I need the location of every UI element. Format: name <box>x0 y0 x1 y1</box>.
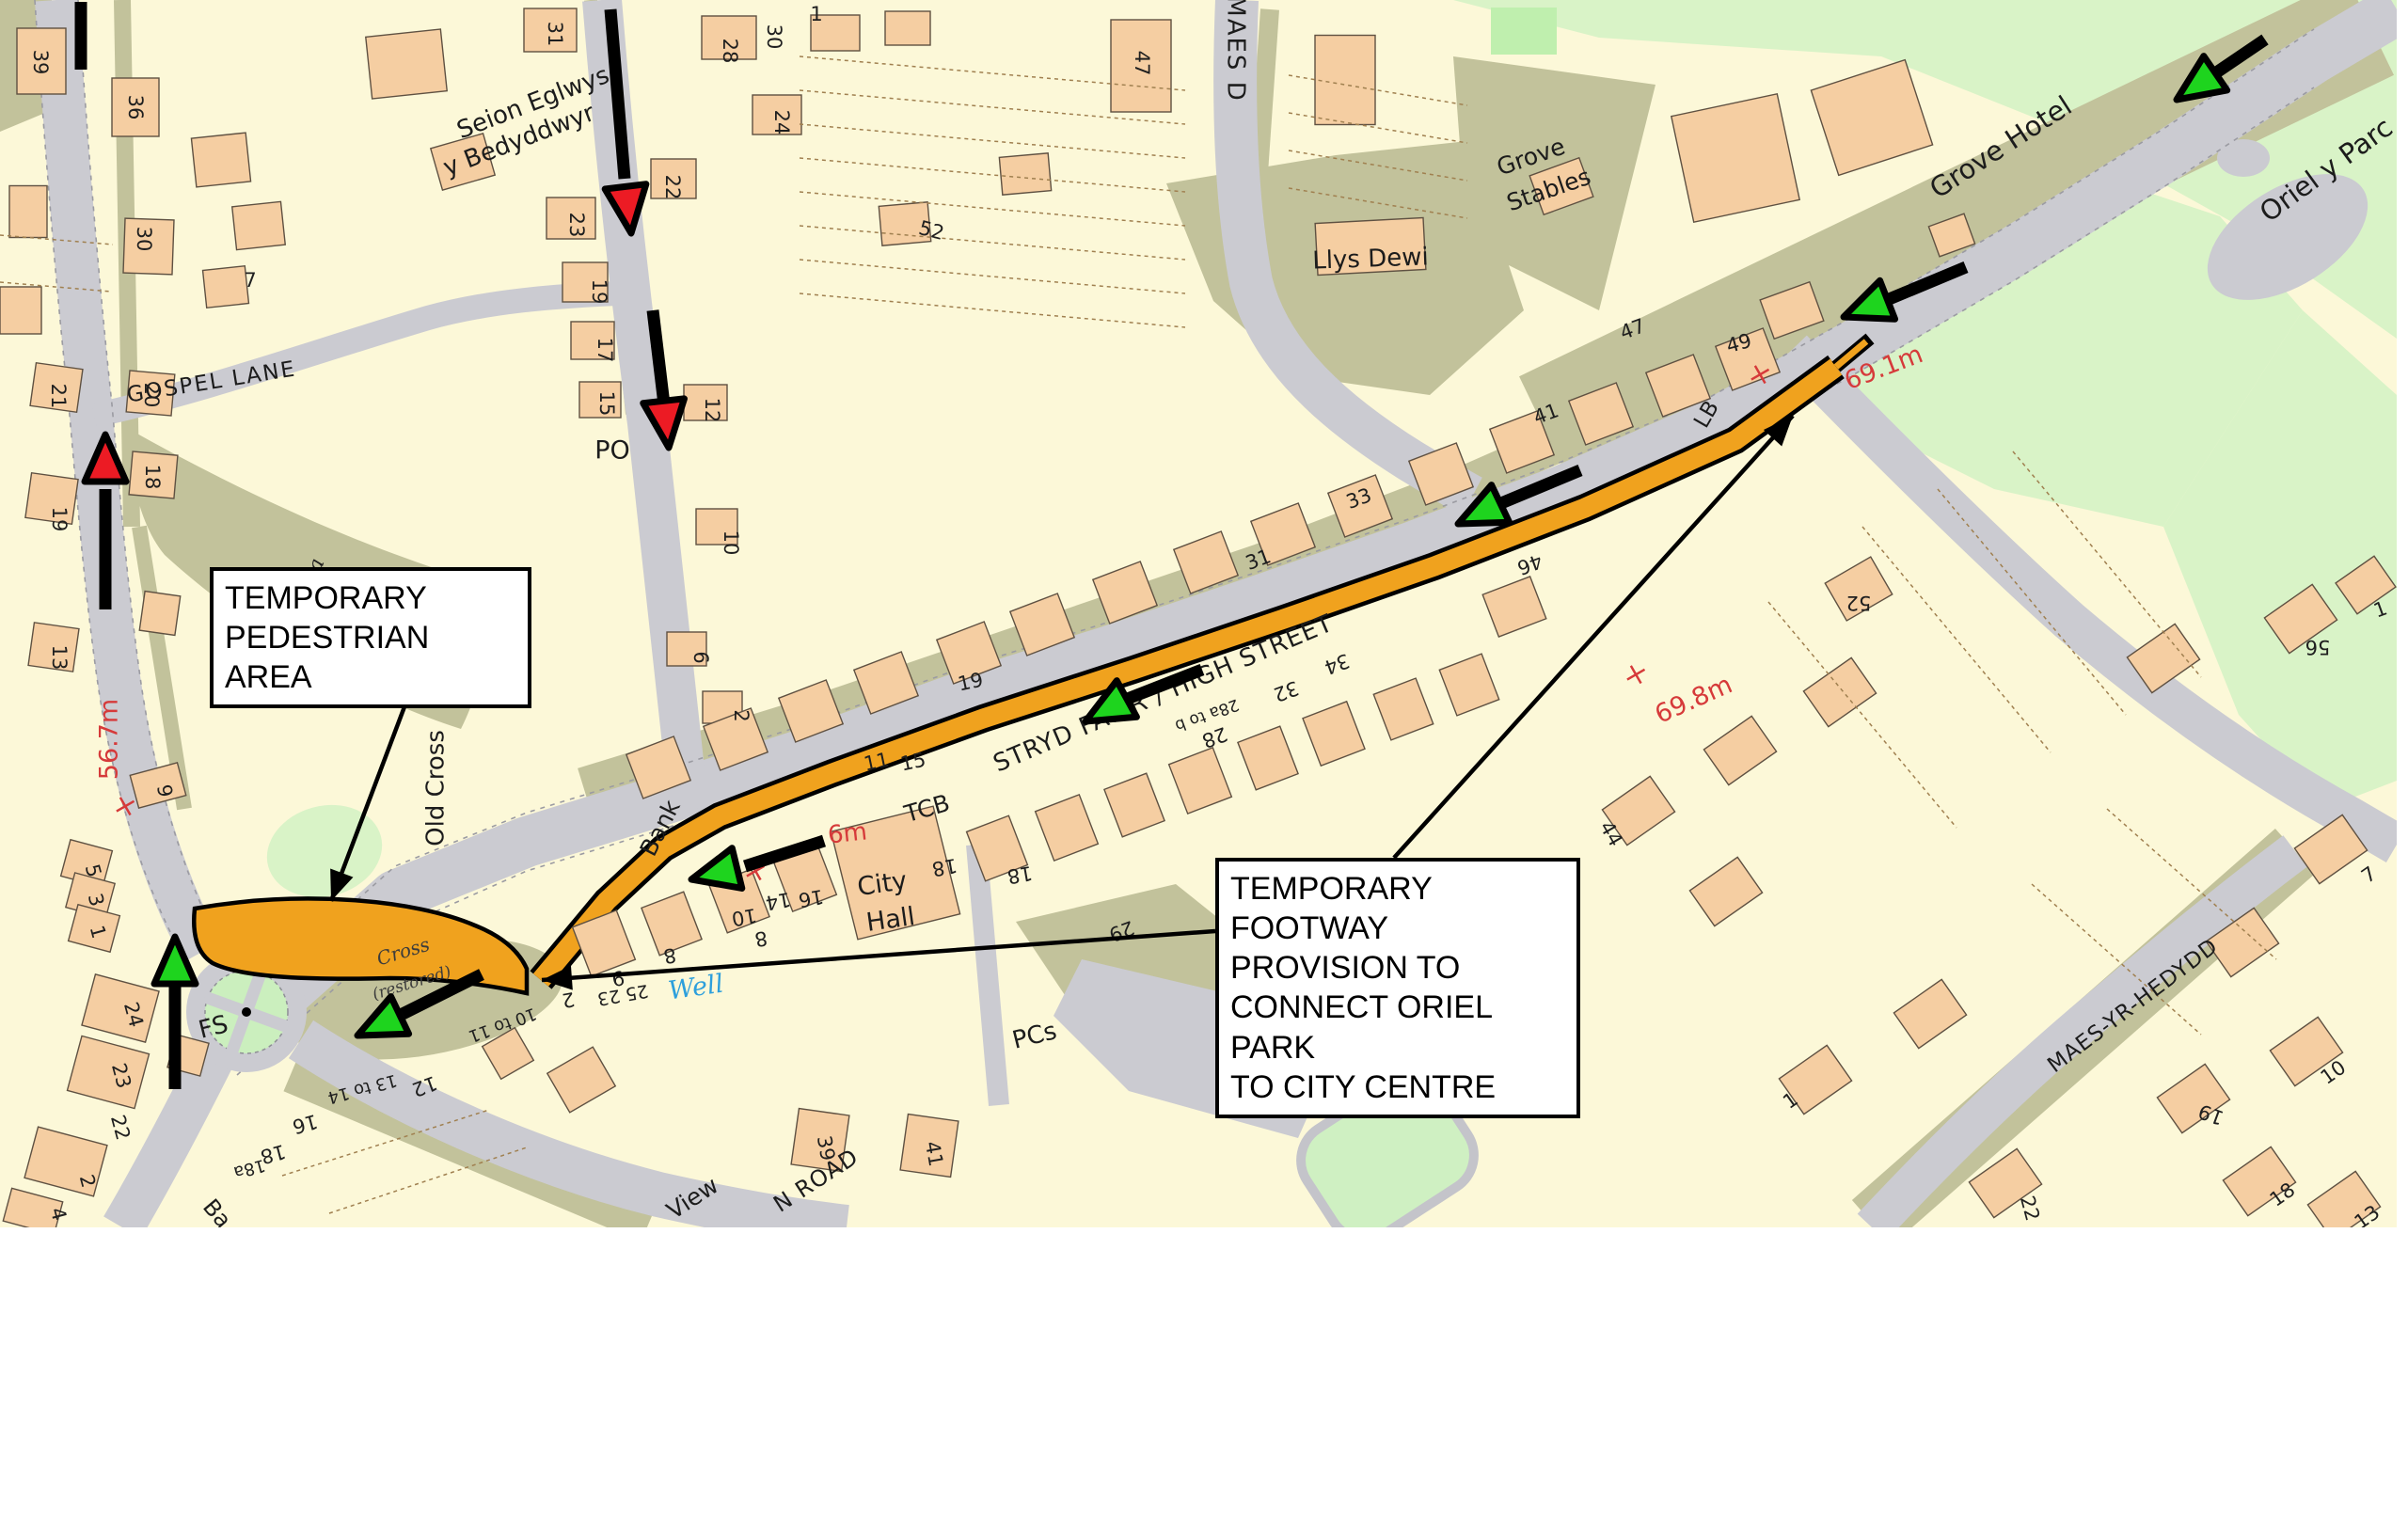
map-label: 10 <box>720 530 742 556</box>
map-label: 30 <box>763 24 785 50</box>
map-label: 23 <box>565 213 588 238</box>
building <box>1671 94 1799 222</box>
map-label: MAES D <box>1222 0 1250 103</box>
map-label: 15 <box>595 391 618 417</box>
map-label: 10 <box>730 904 758 930</box>
map-label: 21 <box>47 384 70 409</box>
building <box>999 153 1051 195</box>
map-label: 39 <box>813 1134 839 1162</box>
map-label: 1 <box>810 3 822 25</box>
map-label: 18 <box>141 465 164 490</box>
map-label: 6 <box>689 651 712 663</box>
map-label: 22 <box>661 175 684 200</box>
map-label: 36 <box>124 95 147 120</box>
building <box>232 201 286 249</box>
map-label: 16 <box>797 885 825 911</box>
map-label: 14 <box>764 888 792 914</box>
map-label: 18 <box>930 854 958 880</box>
map-label: 28 <box>719 39 741 64</box>
building <box>9 186 47 238</box>
map-label: 56.7m <box>95 699 124 780</box>
map-label: 52 <box>1846 592 1872 614</box>
building <box>1315 36 1375 125</box>
building <box>203 266 249 308</box>
map-label: 19 <box>588 279 610 305</box>
map-label: 30 <box>133 227 155 252</box>
map-label: 19 <box>48 507 71 532</box>
annotation-temporary-pedestrian-area: TEMPORARY PEDESTRIAN AREA <box>210 567 531 708</box>
map-label: 17 <box>594 338 616 363</box>
annotation-temporary-footway-provision: TEMPORARY FOOTWAY PROVISION TO CONNECT O… <box>1215 858 1580 1118</box>
map-label: 39 <box>29 50 52 75</box>
map-label: 47 <box>1131 51 1153 76</box>
map-label: 2 <box>730 709 752 721</box>
map-label: PO <box>594 436 630 466</box>
map-label: 7 <box>244 269 256 292</box>
map-label: 20 <box>140 383 163 408</box>
map-label: 31 <box>544 22 566 47</box>
map-label: 24 <box>770 110 793 135</box>
building <box>0 287 41 334</box>
map-label: 56 <box>2305 636 2331 658</box>
building <box>885 11 930 45</box>
building <box>139 592 180 636</box>
map-label: 13 <box>48 645 71 671</box>
map-label: 12 <box>701 398 723 423</box>
map-label: Old Cross <box>422 730 451 846</box>
map-label: 18 <box>1006 862 1034 888</box>
map-label: 41 <box>921 1140 947 1168</box>
building <box>366 29 447 99</box>
planning-map-page: GOSPEL LANESTRYD FAWR / HIGH STREETMAES … <box>0 0 2408 1534</box>
building <box>191 133 250 187</box>
map-label: Llys Dewi <box>1312 243 1429 275</box>
map-label: 6m <box>827 817 869 849</box>
